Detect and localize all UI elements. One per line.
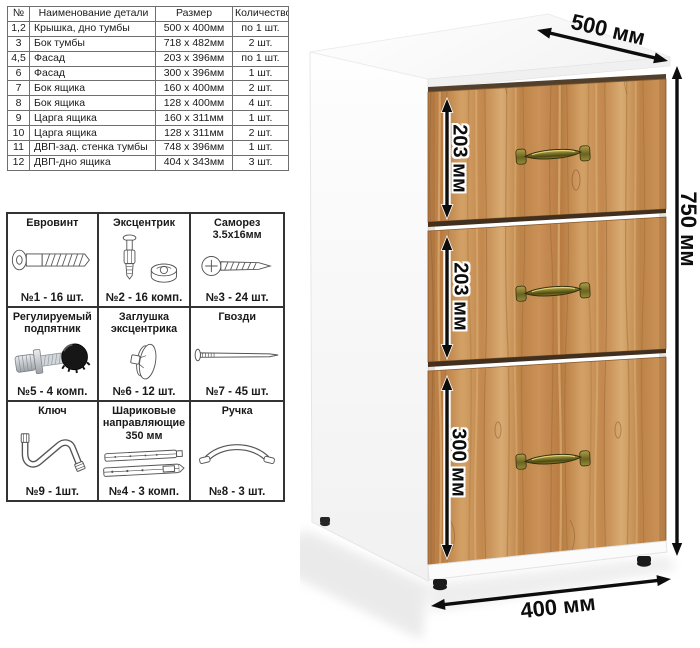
part-row: 8Бок ящика128 х 400мм4 шт. — [8, 96, 289, 111]
hardware-count: №6 - 12 шт. — [113, 386, 176, 398]
hardware-cell-euroscrew: Евровинт №1 - 16 шт. — [8, 214, 99, 308]
part-qty: 1 шт. — [233, 66, 289, 81]
part-size: 160 х 311мм — [156, 111, 233, 126]
part-name: Бок тумбы — [30, 36, 156, 51]
part-name: Бок ящика — [30, 81, 156, 96]
cam-lock-icon — [106, 232, 182, 288]
part-size: 300 х 396мм — [156, 66, 233, 81]
dimension-label-height: 750 мм — [675, 182, 700, 276]
hardware-title: Саморез 3.5х16мм — [192, 217, 282, 241]
cabinet-illustration: 500 мм 750 мм 400 мм 203 мм 203 мм 300 м… — [300, 0, 700, 648]
part-row: 6Фасад300 х 396мм1 шт. — [8, 66, 289, 81]
part-name: Бок ящика — [30, 96, 156, 111]
part-name: ДВП-дно ящика — [30, 155, 156, 170]
part-name: Царга ящика — [30, 126, 156, 141]
hardware-title: Эксцентрик — [113, 217, 175, 229]
part-qty: по 1 шт. — [233, 51, 289, 66]
hardware-cell-foot: Регулируемый подпятник — [8, 308, 99, 403]
header-num: № — [8, 7, 30, 22]
hardware-count: №4 - 3 комп. — [109, 486, 179, 498]
part-num: 4,5 — [8, 51, 30, 66]
part-qty: 1 шт. — [233, 111, 289, 126]
part-qty: по 1 шт. — [233, 21, 289, 36]
adjustable-foot-icon — [10, 339, 94, 383]
part-name: Царга ящика — [30, 111, 156, 126]
hardware-cell-nails: Гвозди №7 - 45 шт. — [191, 308, 283, 403]
header-qty: Количество — [233, 7, 289, 22]
hardware-cell-cam: Эксцентрик №2 - 16 комп. — [99, 214, 192, 308]
part-num: 10 — [8, 126, 30, 141]
part-qty: 1 шт. — [233, 141, 289, 156]
part-size: 203 х 396мм — [156, 51, 233, 66]
header-size: Размер — [156, 7, 233, 22]
hardware-title: Евровинт — [26, 217, 78, 229]
foot-front-right — [637, 556, 651, 567]
hardware-title: Шариковые направляющие 350 мм — [100, 405, 189, 441]
part-row: 4,5Фасад203 х 396ммпо 1 шт. — [8, 51, 289, 66]
part-row: 12ДВП-дно ящика404 х 343мм3 шт. — [8, 155, 289, 170]
hardware-title: Регулируемый подпятник — [9, 311, 96, 335]
part-row: 7Бок ящика160 х 400мм2 шт. — [8, 81, 289, 96]
hardware-count: №8 - 3 шт. — [209, 486, 265, 498]
part-num: 9 — [8, 111, 30, 126]
ball-slides-icon — [101, 447, 187, 481]
part-name: ДВП-зад. стенка тумбы — [30, 141, 156, 156]
hardware-count: №9 - 1шт. — [26, 486, 79, 498]
part-size: 128 х 311мм — [156, 126, 233, 141]
dimension-label-drawer-2: 203 мм — [449, 255, 472, 339]
part-num: 1,2 — [8, 21, 30, 36]
part-num: 12 — [8, 155, 30, 170]
part-row: 3Бок тумбы718 х 482мм2 шт. — [8, 36, 289, 51]
part-size: 718 х 482мм — [156, 36, 233, 51]
cam-cap-icon — [120, 336, 168, 386]
part-qty: 2 шт. — [233, 126, 289, 141]
part-row: 11ДВП-зад. стенка тумбы748 х 396мм1 шт. — [8, 141, 289, 156]
hardware-title: Заглушка эксцентрика — [100, 311, 189, 335]
hardware-count: №1 - 16 шт. — [21, 292, 84, 304]
part-size: 748 х 396мм — [156, 141, 233, 156]
hardware-count: №7 - 45 шт. — [206, 386, 269, 398]
dimension-label-drawer-3: 300 мм — [447, 421, 470, 505]
part-num: 6 — [8, 66, 30, 81]
cabinet-render — [300, 0, 700, 648]
part-size: 500 х 400мм — [156, 21, 233, 36]
parts-table-body: 1,2Крышка, дно тумбы500 х 400ммпо 1 шт.3… — [8, 21, 289, 170]
part-qty: 2 шт. — [233, 36, 289, 51]
hardware-count: №2 - 16 комп. — [106, 292, 183, 304]
hardware-title: Ключ — [38, 405, 67, 417]
hardware-cell-handle: Ручка №8 - 3 шт. — [191, 402, 283, 500]
nails-icon — [193, 346, 281, 364]
parts-table: № Наименование детали Размер Количество … — [7, 6, 289, 171]
hardware-grid: Евровинт №1 - 16 шт. Эксцентрик — [6, 212, 285, 502]
part-qty: 3 шт. — [233, 155, 289, 170]
bow-handle-icon — [196, 438, 278, 466]
part-row: 1,2Крышка, дно тумбы500 х 400ммпо 1 шт. — [8, 21, 289, 36]
self-tapping-screw-icon — [200, 250, 274, 282]
part-name: Фасад — [30, 51, 156, 66]
part-num: 11 — [8, 141, 30, 156]
hardware-count: №5 - 4 комп. — [17, 386, 87, 398]
part-size: 160 х 400мм — [156, 81, 233, 96]
hardware-cell-cap: Заглушка эксцентрика №6 - 12 шт. — [99, 308, 192, 403]
part-qty: 2 шт. — [233, 81, 289, 96]
part-num: 8 — [8, 96, 30, 111]
part-name: Крышка, дно тумбы — [30, 21, 156, 36]
part-num: 7 — [8, 81, 30, 96]
hardware-title: Ручка — [222, 405, 253, 417]
hardware-cell-screw: Саморез 3.5х16мм №3 - 24 шт. — [191, 214, 283, 308]
foot-front-left — [433, 579, 447, 590]
part-row: 9Царга ящика160 х 311мм1 шт. — [8, 111, 289, 126]
part-row: 10Царга ящика128 х 311мм2 шт. — [8, 126, 289, 141]
hardware-cell-key: Ключ №9 - 1шт. — [8, 402, 99, 500]
part-size: 128 х 400мм — [156, 96, 233, 111]
foot-back-left — [320, 517, 330, 526]
cabinet-side-panel — [310, 52, 428, 581]
hex-key-icon — [13, 427, 91, 477]
part-num: 3 — [8, 36, 30, 51]
parts-table-header-row: № Наименование детали Размер Количество — [8, 7, 289, 22]
dimension-label-drawer-1: 203 мм — [448, 117, 471, 201]
part-name: Фасад — [30, 66, 156, 81]
hardware-cell-slides: Шариковые направляющие 350 мм — [99, 402, 192, 500]
euroscrew-icon — [9, 246, 95, 274]
hardware-count: №3 - 24 шт. — [206, 292, 269, 304]
part-qty: 4 шт. — [233, 96, 289, 111]
hardware-title: Гвозди — [218, 311, 256, 323]
header-name: Наименование детали — [30, 7, 156, 22]
part-size: 404 х 343мм — [156, 155, 233, 170]
